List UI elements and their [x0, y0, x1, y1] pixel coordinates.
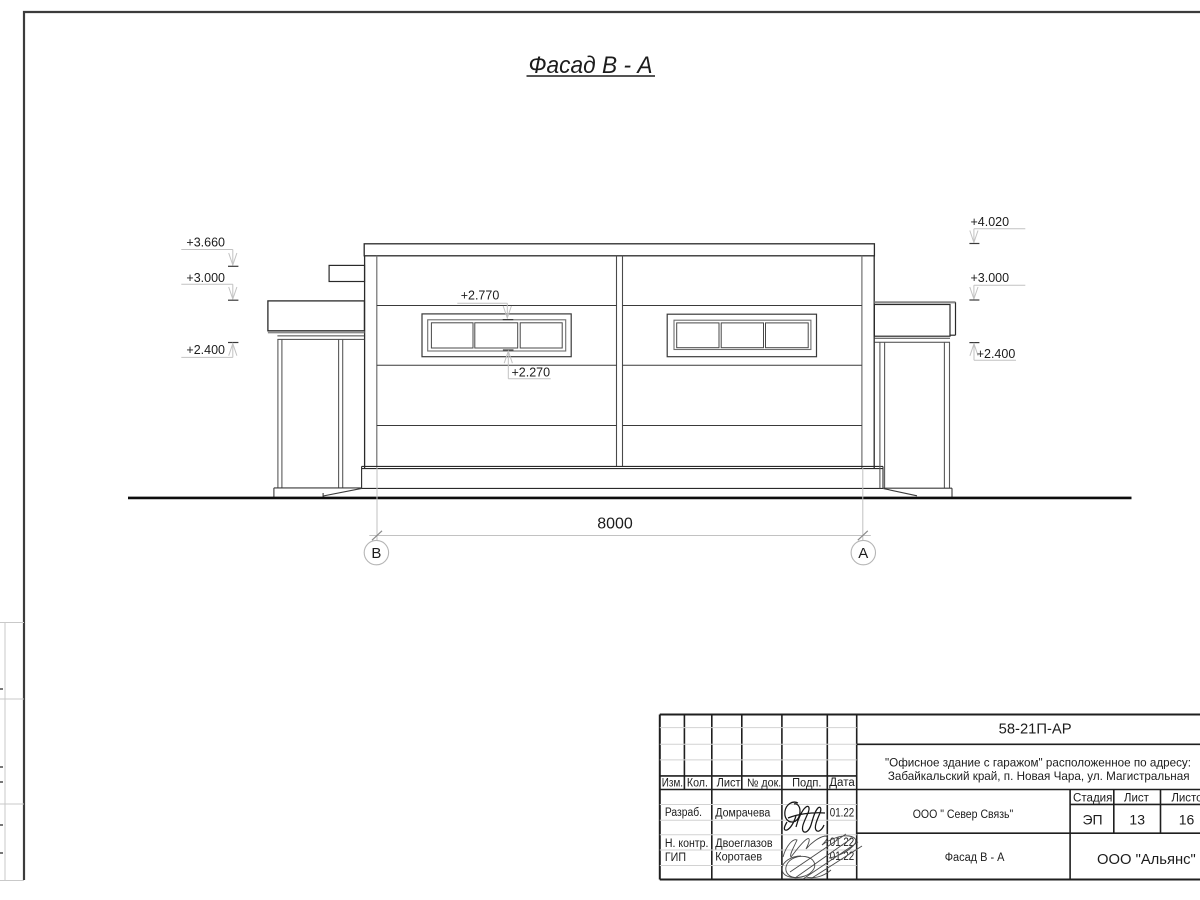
- svg-text:+2.770: +2.770: [461, 289, 500, 303]
- svg-text:ООО " Север Связь": ООО " Север Связь": [913, 809, 1014, 821]
- svg-text:В: В: [371, 545, 381, 562]
- svg-text:Лист: Лист: [1124, 792, 1150, 804]
- svg-text:+2.400: +2.400: [186, 343, 225, 357]
- svg-text:Фасад В - А: Фасад В - А: [529, 52, 653, 79]
- svg-text:Стадия: Стадия: [1073, 792, 1112, 804]
- svg-text:№ док.: № док.: [747, 778, 781, 790]
- svg-text:Разраб.: Разраб.: [665, 807, 702, 819]
- svg-text:Изм.: Изм.: [662, 778, 683, 790]
- svg-text:8000: 8000: [597, 516, 633, 533]
- svg-text:+2.270: +2.270: [512, 366, 551, 380]
- svg-text:Дата: Дата: [829, 777, 855, 789]
- svg-text:ГИП: ГИП: [665, 852, 686, 864]
- svg-text:+3.660: +3.660: [186, 236, 225, 250]
- svg-text:13: 13: [1129, 812, 1145, 828]
- svg-text:16: 16: [1179, 812, 1195, 828]
- svg-text:ЭП: ЭП: [1082, 812, 1102, 828]
- svg-text:Листов: Листов: [1171, 792, 1200, 804]
- svg-text:Домрачева: Домрачева: [715, 808, 771, 820]
- svg-text:А: А: [858, 545, 868, 562]
- svg-text:Лист: Лист: [717, 778, 742, 790]
- svg-text:Кол.: Кол.: [687, 778, 708, 790]
- svg-text:Фасад В - А: Фасад В - А: [945, 852, 1005, 864]
- svg-text:"Офисное здание с гаражом" рас: "Офисное здание с гаражом" расположенное…: [885, 756, 1191, 770]
- svg-text:+3.000: +3.000: [971, 271, 1010, 285]
- svg-text:+4.020: +4.020: [971, 215, 1010, 229]
- svg-text:+3.000: +3.000: [186, 271, 225, 285]
- svg-text:ООО "Альянс": ООО "Альянс": [1097, 852, 1196, 868]
- svg-text:01.22: 01.22: [830, 807, 855, 819]
- svg-text:Двоеглазов: Двоеглазов: [715, 838, 772, 850]
- svg-text:Подп.: Подп.: [792, 778, 821, 790]
- svg-text:Коротаев: Коротаев: [715, 852, 762, 864]
- svg-text:+2.400: +2.400: [977, 347, 1016, 361]
- svg-text:Забайкальский край, п. Новая Ч: Забайкальский край, п. Новая Чара, ул. М…: [888, 769, 1190, 783]
- svg-text:58-21П-АР: 58-21П-АР: [999, 722, 1072, 738]
- svg-text:Н. контр.: Н. контр.: [665, 838, 709, 850]
